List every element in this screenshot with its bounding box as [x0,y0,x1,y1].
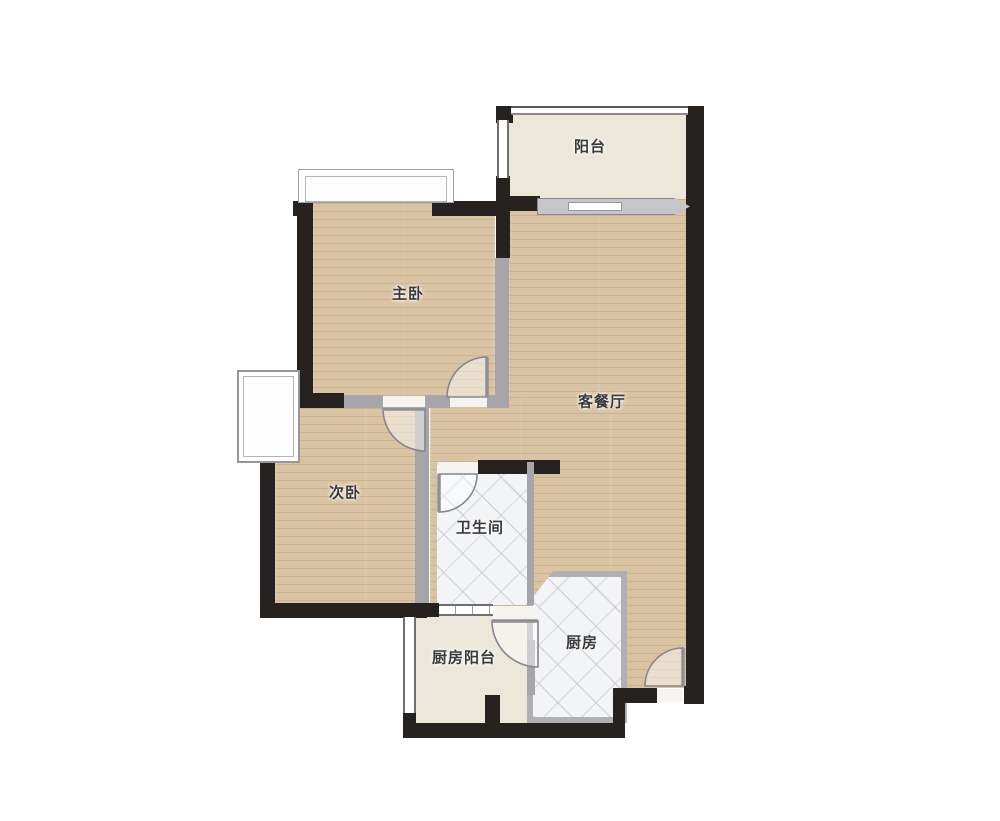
partition-wall [527,640,535,695]
door-opening-kitchen-balcony [492,606,538,620]
room-label-kitchen: 厨房 [566,632,598,653]
wall-segment [613,688,625,738]
door-opening-master [450,396,487,407]
wall-segment [478,460,560,474]
wall-segment [684,686,704,704]
balcony-top-window [511,106,688,115]
sliding-door-handle [568,202,622,211]
wall-segment [297,393,344,408]
room-label-balcony: 阳台 [574,136,606,157]
floor-plan: 阳台 主卧 客餐厅 次卧 卫生间 厨房阳台 厨房 [0,0,1000,821]
room-area-living-upper [508,199,686,408]
kitchen-balcony-side-window [403,617,416,713]
room-label-second-bedroom: 次卧 [329,482,361,503]
room-label-living-dining: 客餐厅 [578,391,626,412]
door-opening-bathroom [439,462,478,474]
door-opening-entrance [657,689,682,702]
room-label-kitchen-balcony: 厨房阳台 [432,647,496,668]
bathroom-bottom-window [439,604,493,616]
wall-segment [625,688,657,703]
partition-wall [495,258,509,408]
room-area-kitchen-balcony [416,615,527,725]
master-bay-window [298,169,454,203]
partition-wall [527,462,534,605]
second-bedroom-bay-window-frame [243,376,294,457]
wall-segment [403,603,439,617]
wall-segment [260,460,275,618]
balcony-side-window [497,120,509,178]
partition-wall [487,395,508,408]
room-label-master-bedroom: 主卧 [392,283,424,304]
wall-segment [496,196,540,211]
wall-segment [260,603,427,618]
room-label-bathroom: 卫生间 [456,517,504,538]
wall-segment [497,723,625,738]
balcony-sliding-door [537,198,690,215]
master-bay-window-frame [305,176,447,202]
partition-wall [344,395,383,408]
partition-wall [425,395,450,408]
wall-segment [496,176,510,258]
wall-segment [432,201,498,216]
door-opening-second-bedroom [383,396,425,407]
room-area-balcony [508,114,686,200]
partition-wall [415,408,429,603]
wall-segment [686,106,704,704]
second-bedroom-bay-window [237,370,300,463]
